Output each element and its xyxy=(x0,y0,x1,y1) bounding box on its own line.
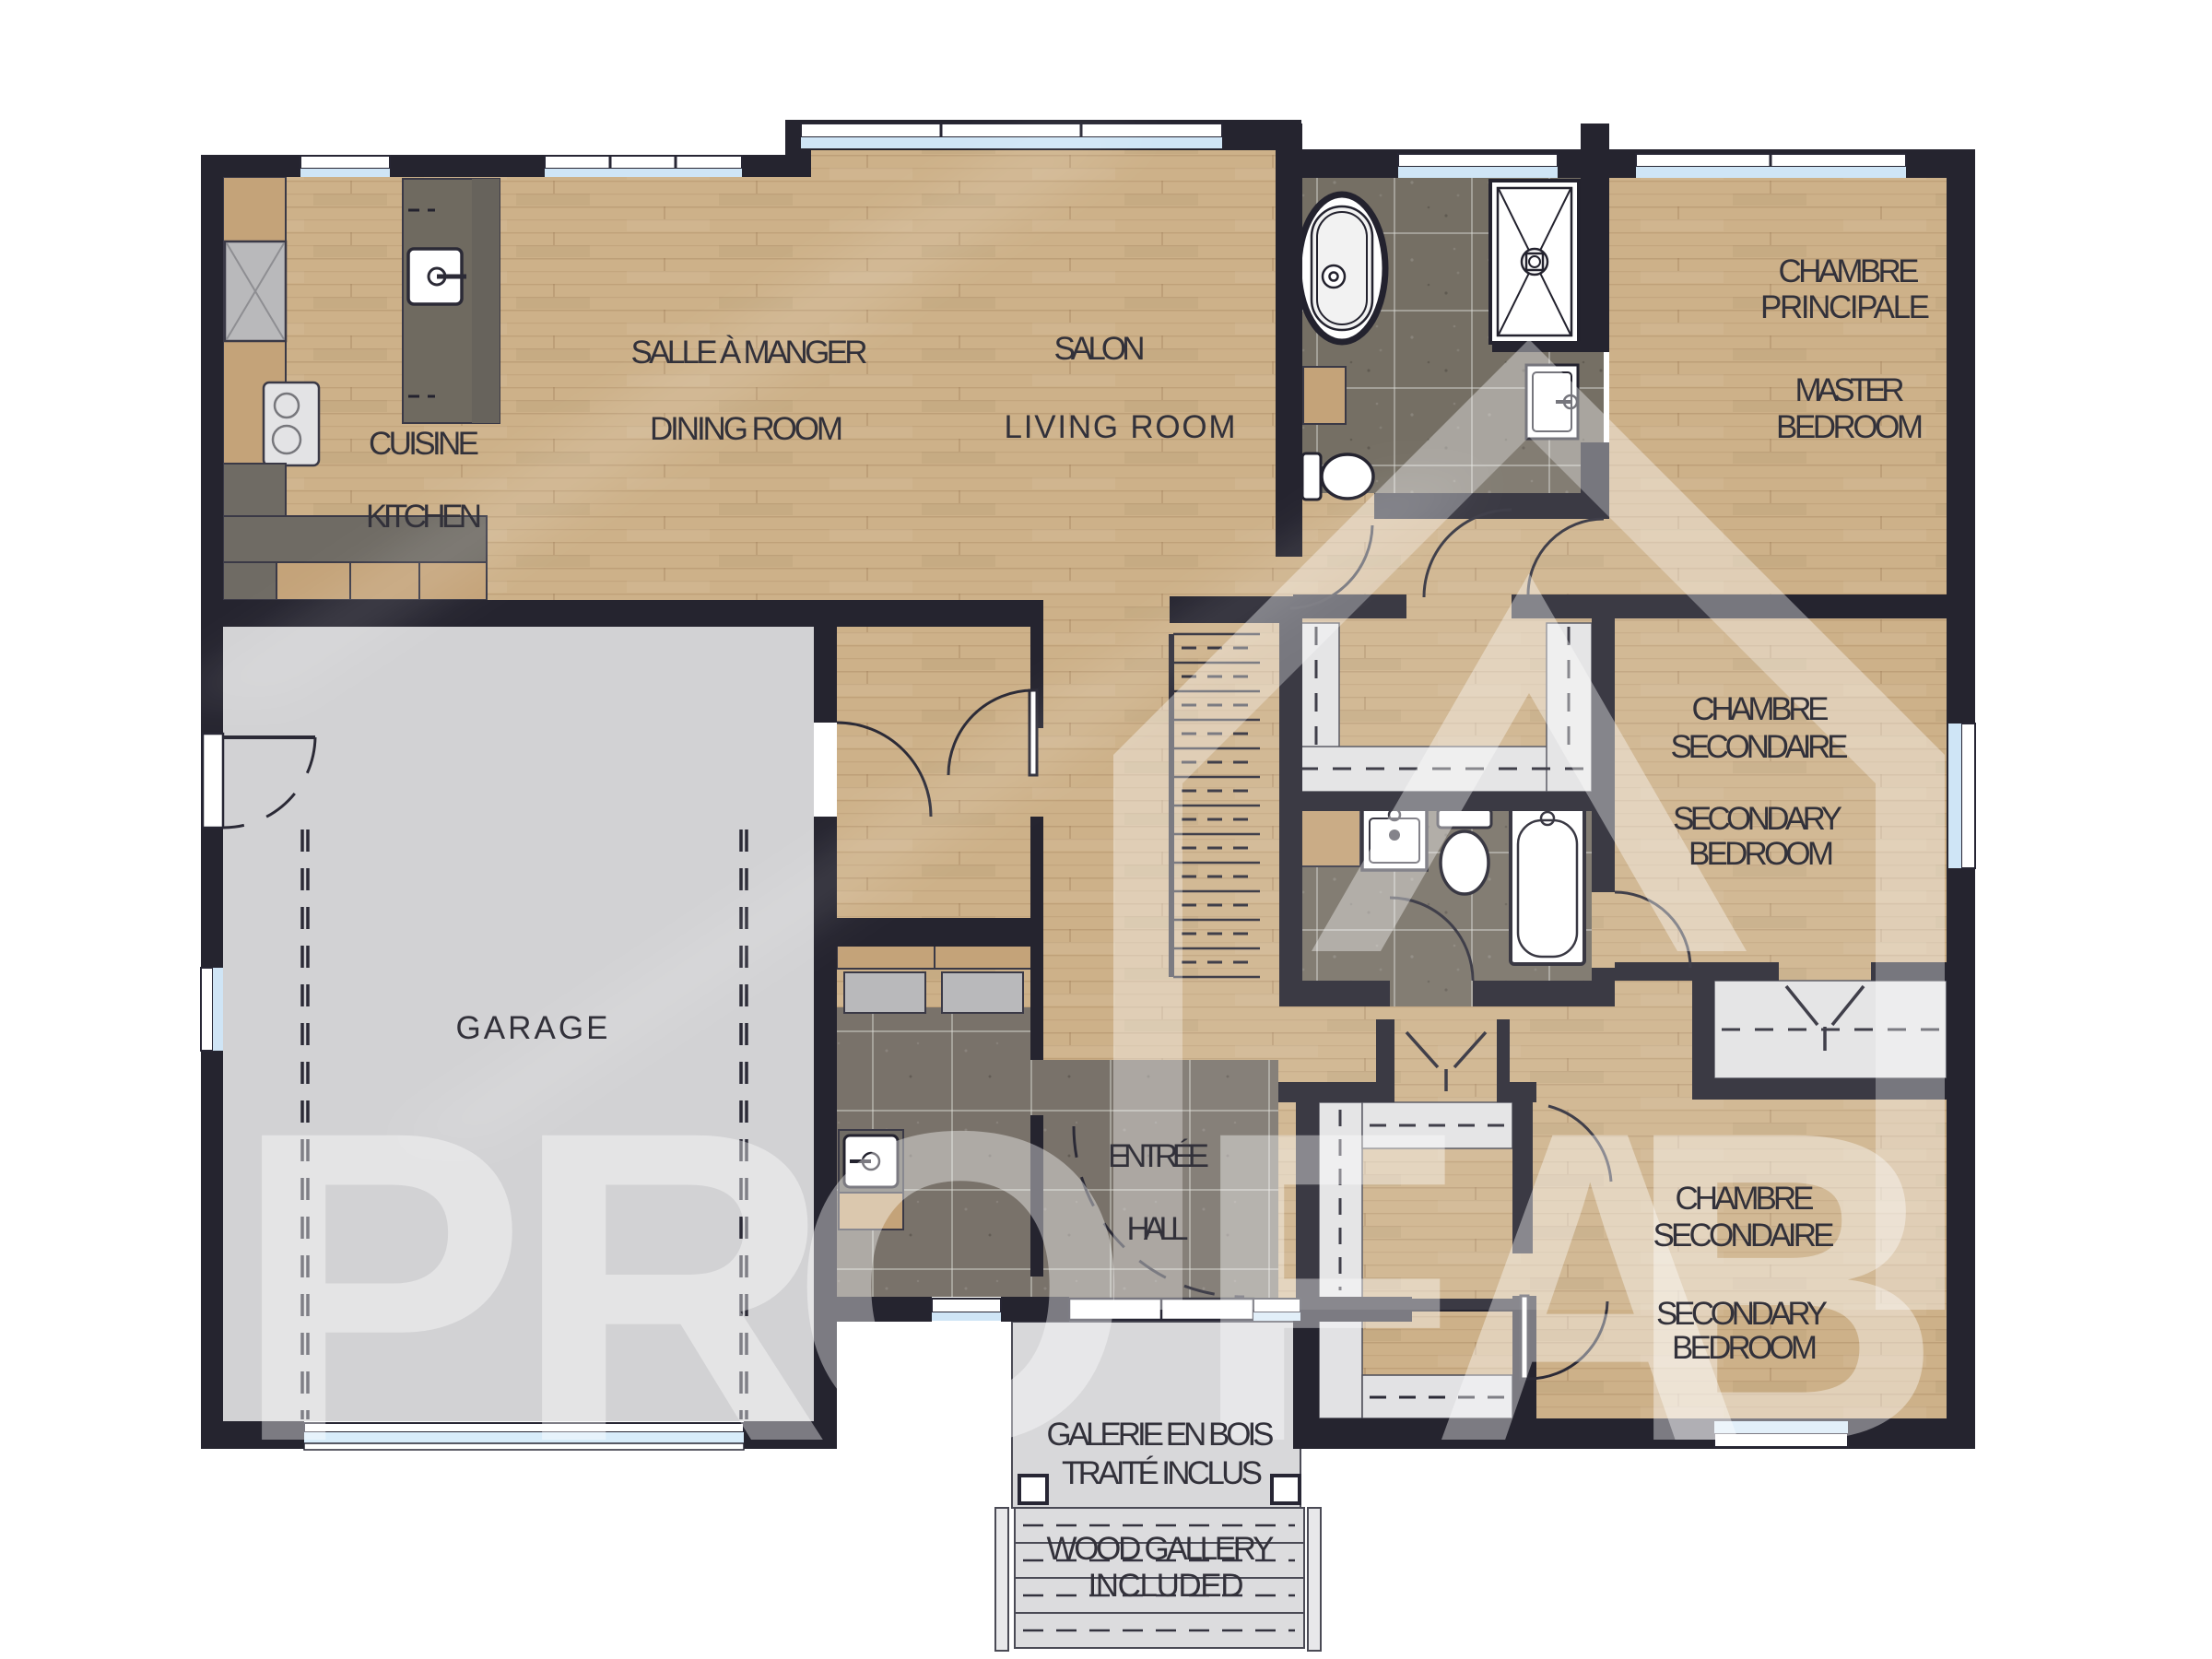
svg-text:SECONDAIRE: SECONDAIRE xyxy=(1671,729,1849,765)
svg-text:SALON: SALON xyxy=(1054,331,1146,367)
svg-text:CUISINE: CUISINE xyxy=(369,426,479,462)
svg-text:TRAITÉ INCLUS: TRAITÉ INCLUS xyxy=(1062,1455,1263,1491)
svg-text:R: R xyxy=(512,1039,832,1534)
svg-text:WOOD GALLERY: WOOD GALLERY xyxy=(1047,1531,1275,1567)
svg-text:SECONDAIRE: SECONDAIRE xyxy=(1653,1218,1835,1253)
svg-text:HALL: HALL xyxy=(1127,1211,1189,1247)
svg-text:ENTRÉE: ENTRÉE xyxy=(1108,1138,1209,1174)
svg-text:SECONDARY: SECONDARY xyxy=(1656,1296,1828,1332)
svg-text:KITCHEN: KITCHEN xyxy=(366,499,482,535)
svg-text:SALLE À MANGER: SALLE À MANGER xyxy=(631,335,868,371)
svg-text:MASTER: MASTER xyxy=(1795,372,1905,408)
svg-text:CHAMBRE: CHAMBRE xyxy=(1779,253,1920,289)
svg-text:DINING ROOM: DINING ROOM xyxy=(650,411,843,447)
svg-text:BEDROOM: BEDROOM xyxy=(1688,836,1834,872)
svg-text:GALERIE EN BOIS: GALERIE EN BOIS xyxy=(1047,1417,1275,1453)
svg-text:BEDROOM: BEDROOM xyxy=(1672,1330,1818,1366)
svg-text:LIVING ROOM: LIVING ROOM xyxy=(1005,409,1236,445)
svg-text:CHAMBRE: CHAMBRE xyxy=(1692,691,1830,727)
svg-text:SECONDARY: SECONDARY xyxy=(1673,801,1842,837)
svg-text:PRINCIPALE: PRINCIPALE xyxy=(1760,289,1930,325)
svg-text:INCLUDED: INCLUDED xyxy=(1088,1568,1244,1604)
svg-text:CHAMBRE: CHAMBRE xyxy=(1676,1181,1815,1217)
svg-text:BEDROOM: BEDROOM xyxy=(1776,409,1924,445)
svg-text:B: B xyxy=(1624,1039,1944,1534)
